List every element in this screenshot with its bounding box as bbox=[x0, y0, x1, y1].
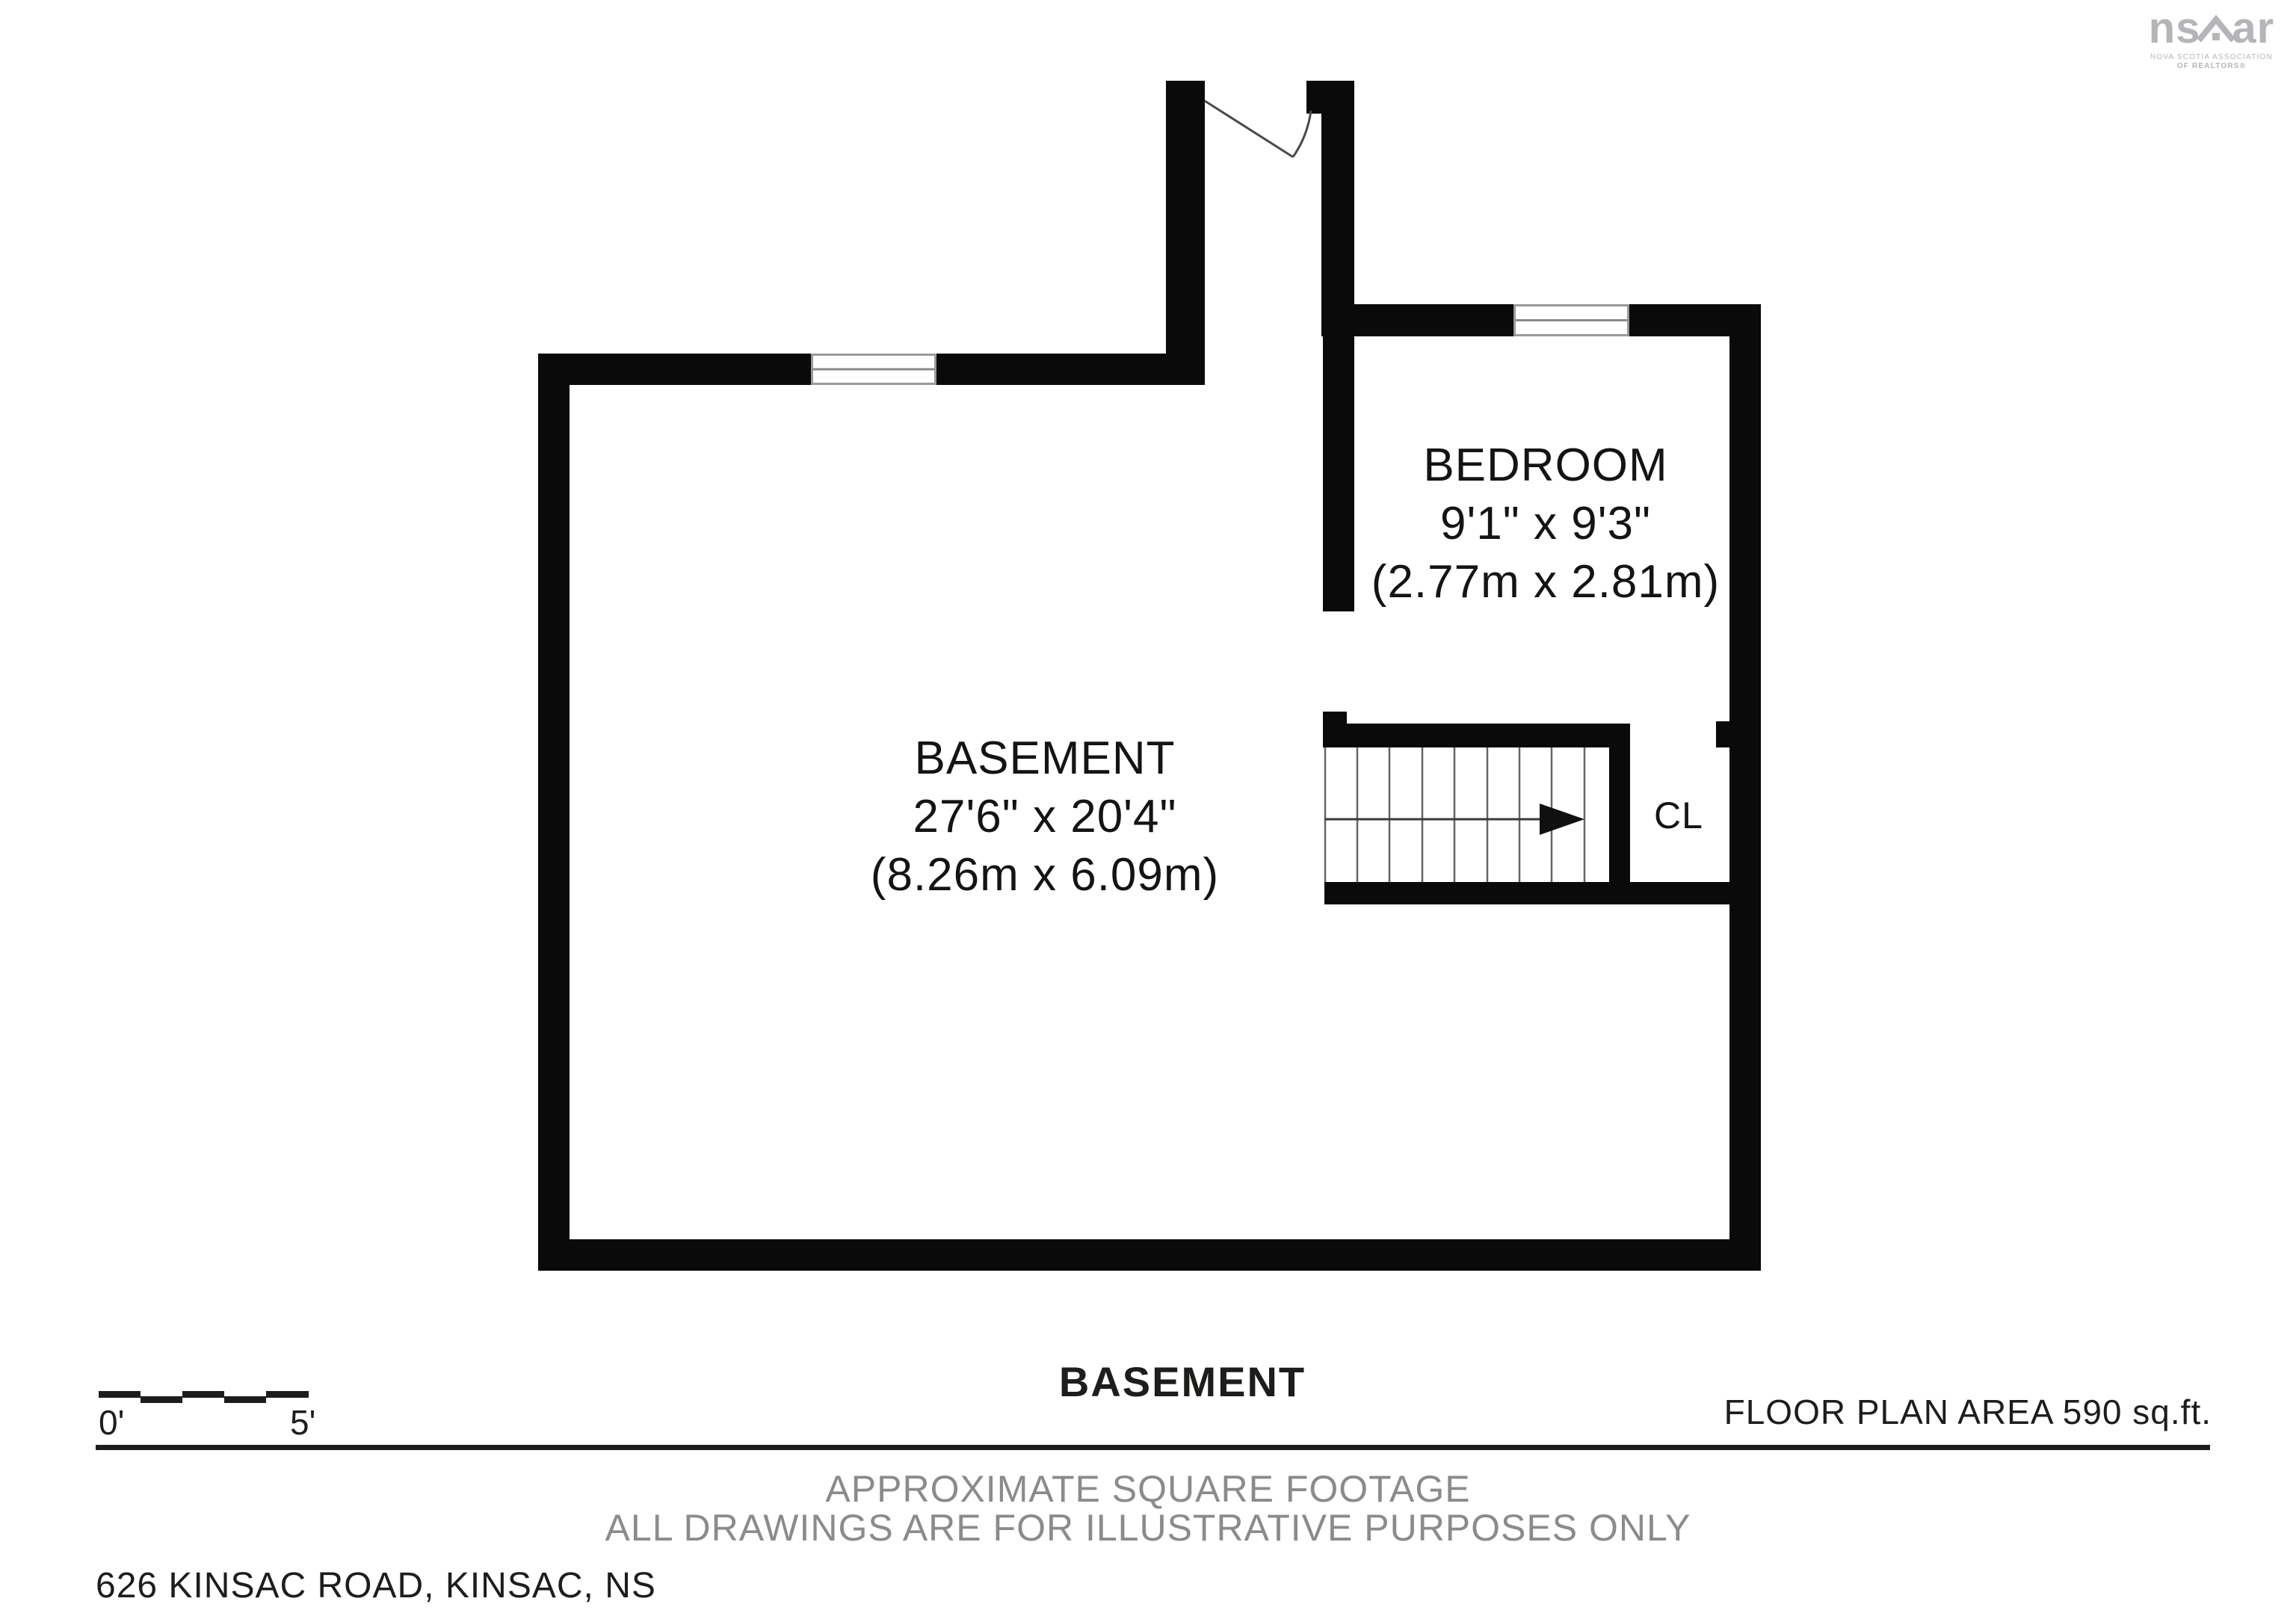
window-bedroom bbox=[1513, 304, 1629, 336]
floor-plan-area-label: FLOOR PLAN AREA 590 sq.ft. bbox=[1724, 1392, 2212, 1432]
footer-divider-rule bbox=[96, 1445, 2210, 1450]
basement-dims-m: (8.26m x 6.09m) bbox=[871, 846, 1219, 904]
logo-text-ns: ns bbox=[2149, 6, 2201, 51]
house-roof-icon bbox=[2197, 13, 2235, 46]
nsar-logo-wordmark: ns ar bbox=[2141, 6, 2283, 51]
wall-bottom-outer bbox=[538, 1239, 1761, 1271]
scale-bar bbox=[99, 1391, 309, 1403]
nsar-logo: ns ar NOVA SCOTIA ASSOCIATION OF REALTOR… bbox=[2141, 6, 2283, 71]
wall-left-outer bbox=[538, 354, 570, 1271]
door-swing bbox=[1205, 101, 1311, 157]
basement-label: BASEMENT 27'6" x 20'4" (8.26m x 6.09m) bbox=[871, 730, 1219, 904]
property-address: 626 KINSAC ROAD, KINSAC, NS bbox=[96, 1565, 656, 1606]
disclaimer-block: APPROXIMATE SQUARE FOOTAGE ALL DRAWINGS … bbox=[0, 1470, 2296, 1547]
wall-stairs-bottom bbox=[1324, 882, 1761, 904]
scale-start-label: 0' bbox=[99, 1402, 124, 1443]
scale-end-label: 5' bbox=[290, 1402, 315, 1443]
wall-stairs-closet-divider bbox=[1609, 747, 1630, 882]
closet-label: CL bbox=[1654, 794, 1703, 837]
logo-tagline-line2: OF REALTORS® bbox=[2141, 62, 2283, 71]
logo-text-ar: ar bbox=[2232, 6, 2274, 51]
walls bbox=[538, 81, 1761, 1271]
door-leaf bbox=[1205, 101, 1293, 157]
bedroom-dims-ft: 9'1" x 9'3" bbox=[1371, 495, 1720, 553]
bedroom-label: BEDROOM 9'1" x 9'3" (2.77m x 2.81m) bbox=[1371, 437, 1720, 611]
wall-corridor-left bbox=[1166, 81, 1205, 385]
basement-name: BASEMENT bbox=[871, 730, 1219, 788]
basement-dims-ft: 27'6" x 20'4" bbox=[871, 788, 1219, 846]
disclaimer-line1: APPROXIMATE SQUARE FOOTAGE bbox=[0, 1470, 2296, 1508]
wall-corridor-right bbox=[1321, 81, 1354, 336]
logo-tagline-line1: NOVA SCOTIA ASSOCIATION bbox=[2141, 52, 2283, 62]
floor-plan-page: ns ar NOVA SCOTIA ASSOCIATION OF REALTOR… bbox=[0, 0, 2296, 1622]
wall-door-jamb bbox=[1306, 81, 1321, 114]
disclaimer-line2: ALL DRAWINGS ARE FOR ILLUSTRATIVE PURPOS… bbox=[0, 1508, 2296, 1547]
floor-title: BASEMENT bbox=[1059, 1357, 1306, 1406]
window-basement bbox=[811, 354, 936, 385]
wall-bedroom-left bbox=[1323, 336, 1354, 611]
bedroom-name: BEDROOM bbox=[1371, 437, 1720, 495]
wall-stairs-top bbox=[1323, 724, 1630, 747]
door-arc bbox=[1293, 111, 1311, 157]
wall-closet-jamb bbox=[1716, 721, 1729, 747]
wall-right-outer bbox=[1729, 304, 1761, 1271]
bedroom-dims-m: (2.77m x 2.81m) bbox=[1371, 553, 1720, 611]
stairs bbox=[1325, 747, 1584, 882]
